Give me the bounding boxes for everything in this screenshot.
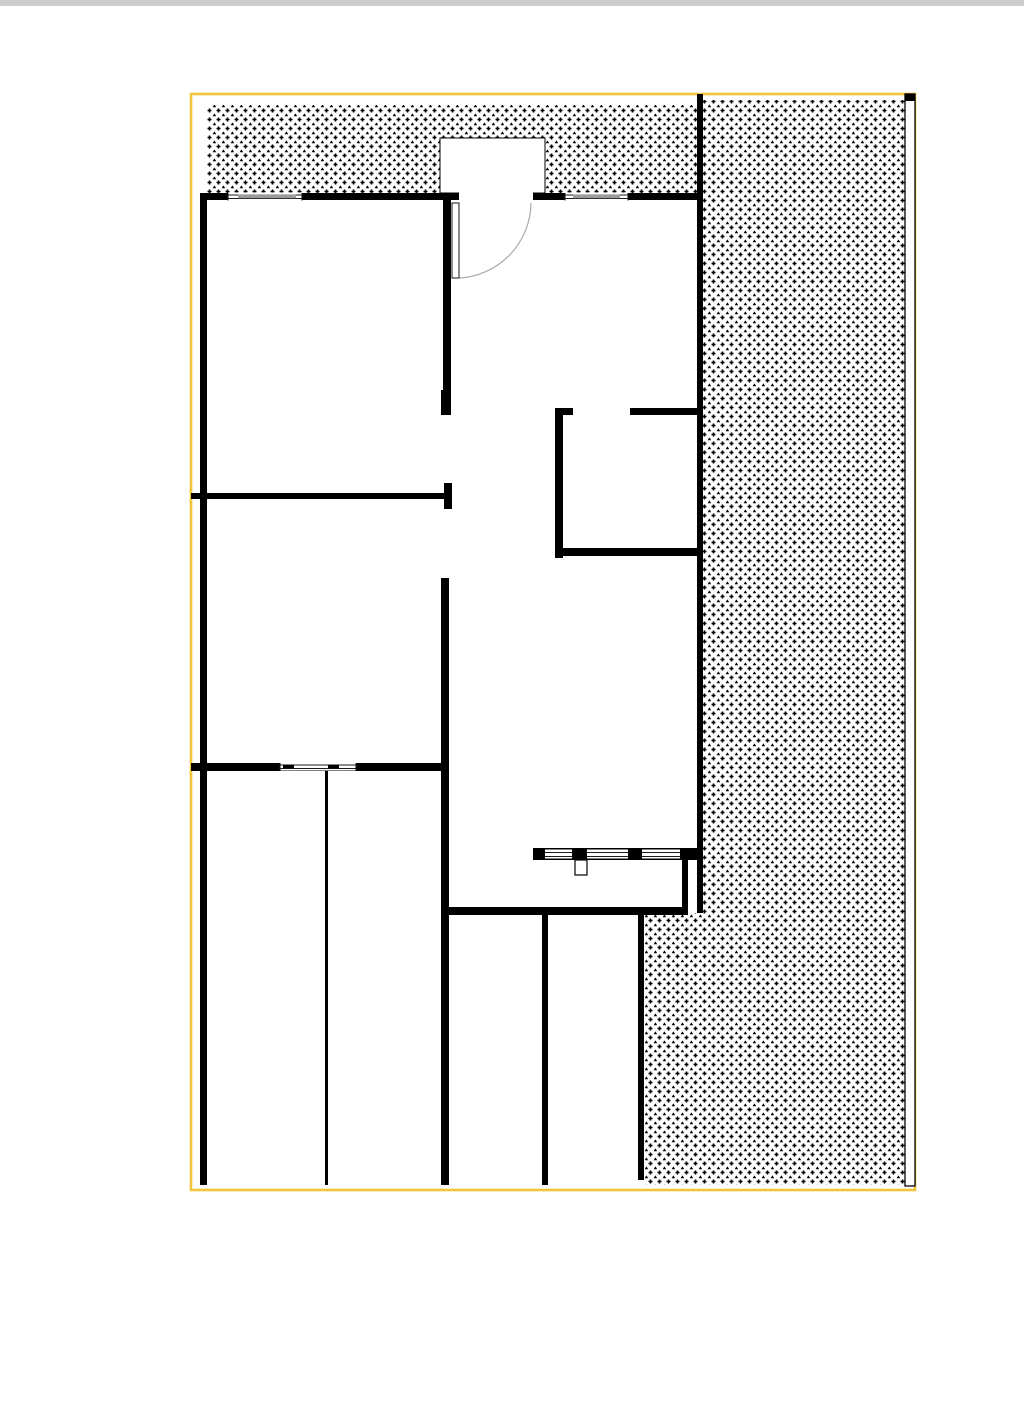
- viewer-top-edge: [0, 0, 1024, 6]
- window-bedroom1: [228, 193, 302, 201]
- right-boundary-cap: [905, 94, 915, 101]
- wall-porch-bottom: [441, 907, 688, 915]
- window-bedroom2: [280, 763, 356, 771]
- wall-carport-2: [638, 915, 644, 1180]
- wall-left: [200, 193, 207, 1185]
- wall-bedroom-divider: [191, 493, 448, 499]
- wall-bath-left: [555, 412, 563, 558]
- hatch-front-yard: [645, 913, 703, 1185]
- floor-plan-sheet: 8000 2800 2800 2400 12000 1100 3300 3000…: [0, 0, 1024, 1406]
- hatch-side-yard: [703, 100, 905, 1185]
- window-kitchen: [565, 193, 628, 201]
- wall-divider-stub: [444, 483, 452, 509]
- wall-center-lower: [441, 578, 449, 1185]
- wall-right-house: [697, 94, 703, 913]
- opening-bath-door: [573, 407, 630, 416]
- floor-plan-canvas: [0, 0, 1024, 1406]
- wall-center-upper: [443, 200, 451, 415]
- right-boundary-wall: [905, 94, 915, 1186]
- wall-porch-right: [682, 855, 688, 915]
- wall-center-stub: [441, 390, 451, 415]
- opening-kitchen-door: [459, 192, 533, 201]
- wall-bath-bottom: [555, 548, 703, 556]
- backyard-opening: [440, 138, 545, 193]
- wall-carport-1: [542, 915, 548, 1185]
- wall-carport-divider: [325, 771, 328, 1185]
